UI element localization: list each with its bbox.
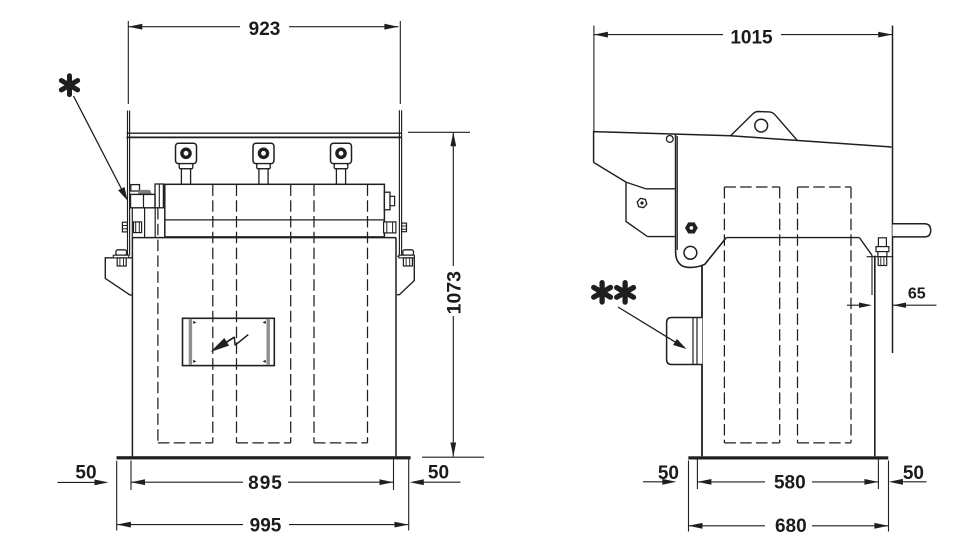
svg-text:50: 50: [75, 463, 96, 484]
svg-text:65: 65: [908, 285, 926, 302]
svg-text:50: 50: [903, 463, 924, 484]
svg-text:50: 50: [428, 463, 449, 484]
svg-text:680: 680: [775, 516, 807, 537]
svg-text:1073: 1073: [443, 271, 465, 315]
svg-text:1015: 1015: [730, 27, 773, 48]
svg-text:895: 895: [248, 473, 283, 494]
svg-text:50: 50: [658, 463, 679, 484]
svg-text:923: 923: [249, 19, 281, 40]
svg-text:995: 995: [250, 515, 282, 536]
svg-text:580: 580: [774, 473, 806, 494]
